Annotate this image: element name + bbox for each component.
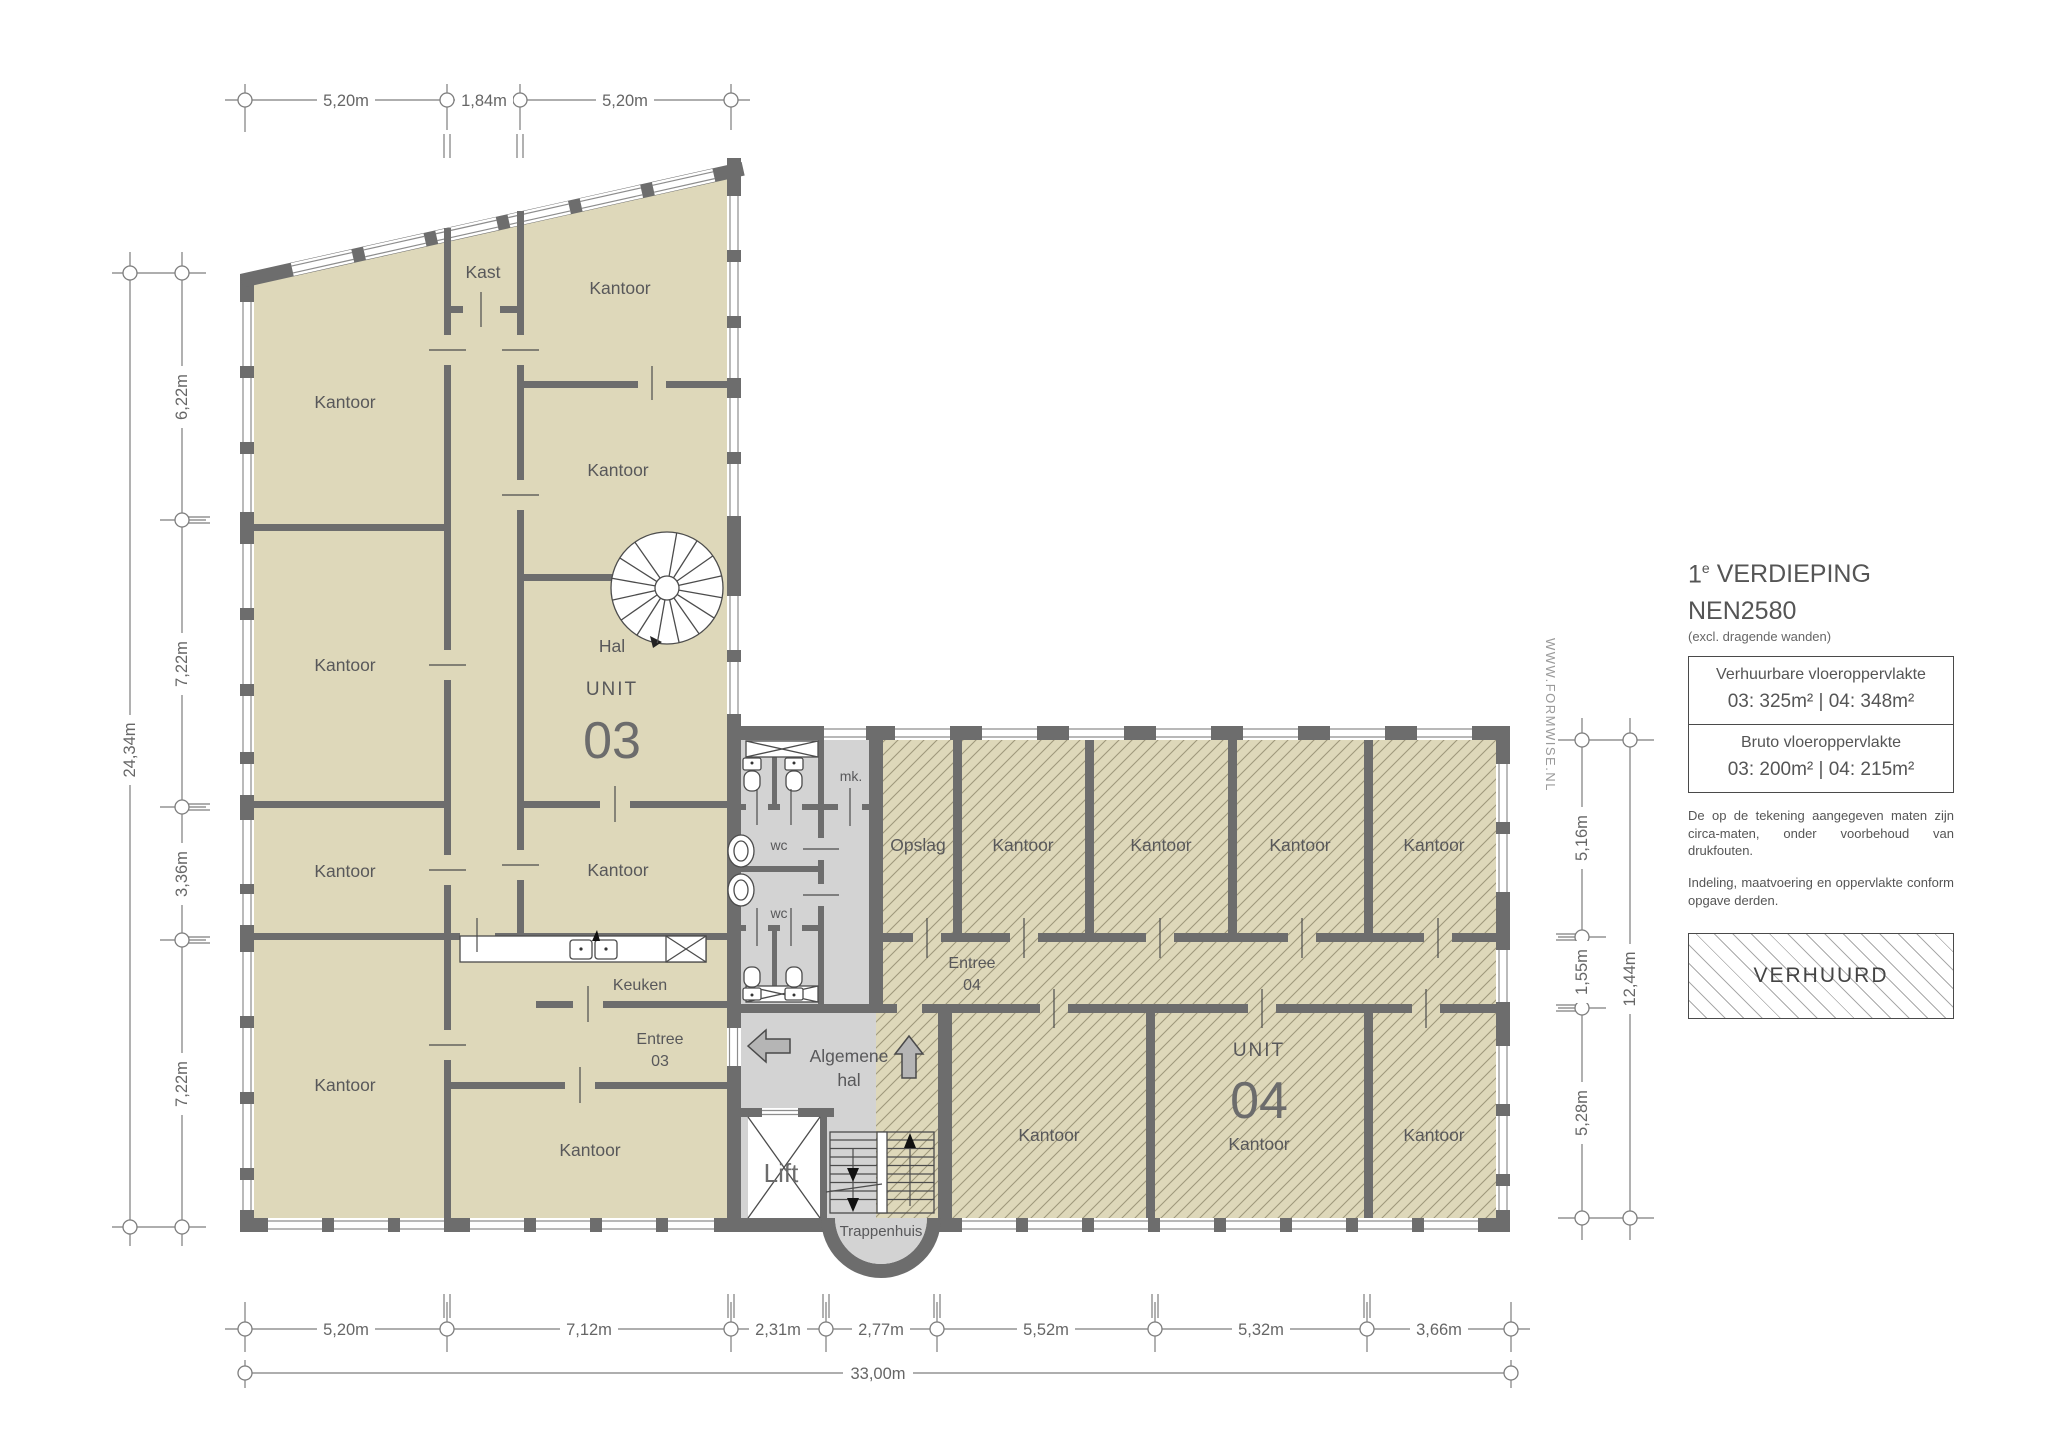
room-label-mk: mk. [840,768,863,784]
room-fills [247,172,1503,1232]
rentable-values: 03: 325m² | 04: 348m² [1695,691,1947,713]
dim-left: 6,22m 7,22m 3,36m 7,22m 24,34m [112,252,210,1246]
entree04-number: 04 [963,977,981,994]
wall-south-east [929,1218,1510,1232]
floor-word: VERDIEPING [1717,560,1871,588]
room-label-kantoor: Kantoor [1130,835,1191,855]
room-label-kantoor: Kantoor [1228,1134,1289,1154]
unit04-number: 04 [1230,1072,1288,1130]
disclaimer-note-2: Indeling, maatvoering en oppervlakte con… [1688,874,1954,909]
dim-value: 1,84m [461,92,507,110]
entree03-number: 03 [651,1053,669,1070]
floor-ordinal-sup: e [1702,560,1710,576]
dim-value: 1,55m [1573,949,1591,995]
verhuurd-badge: VERHUURD [1688,933,1954,1019]
gross-label: Bruto vloeroppervlakte [1695,734,1947,752]
watermark-text: WWW.FORMWISE.NL [1543,638,1558,792]
room-label-kantoor: Kantoor [1018,1125,1079,1145]
dim-total: 33,00m [850,1365,905,1383]
gross-values: 03: 200m² | 04: 215m² [1695,759,1947,781]
dim-value: 5,16m [1573,815,1591,861]
rentable-label: Verhuurbare vloeroppervlakte [1695,666,1947,684]
room-label-kantoor: Kantoor [1269,835,1330,855]
room-label-wc: wc [769,905,787,921]
room-label-kantoor: Kantoor [1403,835,1464,855]
unit04-word: UNIT [1233,1040,1285,1061]
dim-value: 5,20m [323,92,369,110]
room-label-kantoor: Kantoor [1403,1125,1464,1145]
verhuurd-label: VERHUURD [1753,964,1888,988]
room-label-wc: wc [769,837,787,853]
norm-label: NEN2580 [1688,597,1954,626]
room-label-kantoor: Kantoor [314,392,375,412]
room-label-kantoor: Kantoor [314,655,375,675]
dim-value: 3,66m [1416,1321,1462,1339]
norm-note: (excl. dragende wanden) [1688,629,1954,644]
room-label-kast: Kast [465,262,500,282]
floor-number: 1 [1688,560,1702,588]
dim-value: 7,22m [173,641,191,687]
floorplan-page: Kantoor Kantoor Kantoor Kantoor Kast Kan… [0,0,2048,1448]
dim-value: 2,31m [755,1321,801,1339]
dim-value: 6,22m [173,374,191,420]
dim-value: 5,20m [602,92,648,110]
unit03-word: UNIT [586,679,638,700]
entree03-word: Entree [636,1031,683,1048]
entree04-word: Entree [948,955,995,972]
dim-value: 5,20m [323,1321,369,1339]
dim-value: 5,52m [1023,1321,1069,1339]
area-row-rentable: Verhuurbare vloeroppervlakte 03: 325m² |… [1689,657,1953,724]
unit03-number: 03 [583,712,641,770]
dim-value: 2,77m [858,1321,904,1339]
dim-value: 5,32m [1238,1321,1284,1339]
dim-total: 24,34m [121,722,139,777]
disclaimer-note-1: De op de tekening aangegeven maten zijn … [1688,807,1954,860]
room-label-kantoor: Kantoor [314,861,375,881]
dim-right: 5,16m 1,55m 5,28m 12,44m [1556,718,1654,1240]
dim-value: 7,12m [566,1321,612,1339]
dim-total: 12,44m [1621,951,1639,1006]
room-label-kantoor: Kantoor [314,1075,375,1095]
room-label-kantoor: Kantoor [589,278,650,298]
wall-east-unit03-lower [727,1066,741,1232]
room-label-kantoor: Kantoor [992,835,1053,855]
dim-bottom: 5,20m 7,12m 2,31m 2,77m 5,52m 5,32m 3,66… [225,1294,1530,1388]
algemene-hal-word2: hal [837,1070,860,1090]
dim-value: 7,22m [173,1061,191,1107]
room-label-kantoor: Kantoor [587,860,648,880]
room-label-hal: Hal [599,636,625,656]
room-label-lift: Lift [764,1158,799,1188]
entree03-door [727,1028,741,1066]
room-label-keuken: Keuken [613,977,667,994]
dim-value: 5,28m [1573,1090,1591,1136]
room-label-opslag: Opslag [890,835,945,855]
area-table: Verhuurbare vloeroppervlakte 03: 325m² |… [1688,656,1954,793]
room-label-kantoor: Kantoor [559,1140,620,1160]
page-title: 1eVERDIEPING [1688,560,1954,589]
room-label-trappenhuis: Trappenhuis [840,1223,923,1240]
algemene-hal-word1: Algemene [810,1046,889,1066]
dim-top: 5,20m 1,84m 5,20m [225,84,750,158]
legend-panel: 1eVERDIEPING NEN2580 (excl. dragende wan… [1688,560,1954,1019]
dim-value: 3,36m [173,851,191,897]
room-label-kantoor: Kantoor [587,460,648,480]
area-row-gross: Bruto vloeroppervlakte 03: 200m² | 04: 2… [1689,724,1953,792]
